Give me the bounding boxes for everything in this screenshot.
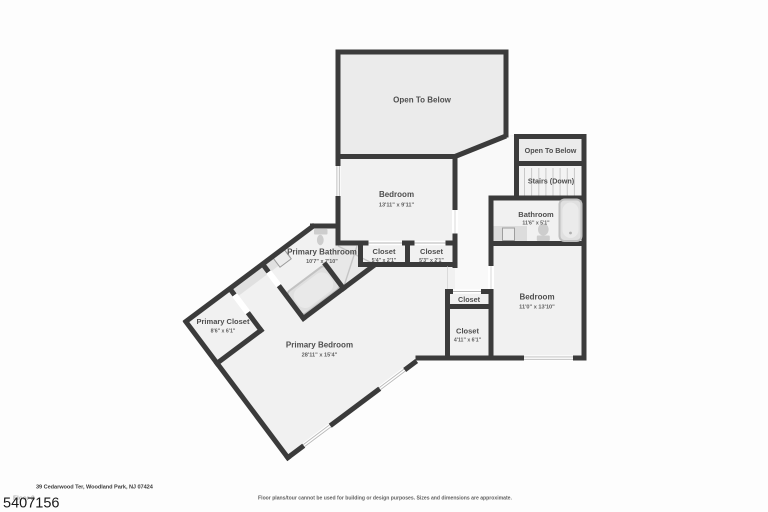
svg-text:Open To Below: Open To Below <box>525 146 577 155</box>
svg-text:Primary Bedroom: Primary Bedroom <box>286 341 353 350</box>
svg-text:Floor plans/tour cannot be use: Floor plans/tour cannot be used for buil… <box>258 496 512 502</box>
svg-text:Primary Closet: Primary Closet <box>197 317 250 326</box>
svg-text:Open To Below: Open To Below <box>393 96 451 105</box>
svg-text:Closet: Closet <box>456 327 479 336</box>
svg-text:5'4" x 2'1": 5'4" x 2'1" <box>372 258 397 264</box>
svg-text:Stairs (Down): Stairs (Down) <box>528 177 575 186</box>
svg-text:5'3" x 2'1": 5'3" x 2'1" <box>419 258 444 264</box>
svg-text:Closet: Closet <box>420 247 443 256</box>
svg-text:11'6" x 5'1": 11'6" x 5'1" <box>522 221 550 227</box>
svg-text:Closet: Closet <box>373 247 396 256</box>
svg-text:4'11" x 6'1": 4'11" x 6'1" <box>454 338 482 344</box>
svg-text:Closet: Closet <box>458 295 481 304</box>
svg-text:11'0" x 13'10": 11'0" x 13'10" <box>519 305 555 311</box>
svg-text:Bedroom: Bedroom <box>379 190 414 199</box>
svg-text:10'7" x 7'10": 10'7" x 7'10" <box>306 259 338 265</box>
svg-text:39 Cedarwood Ter, Woodland Par: 39 Cedarwood Ter, Woodland Park, NJ 0742… <box>36 485 154 491</box>
svg-text:Bedroom: Bedroom <box>519 293 554 302</box>
svg-text:Bathroom: Bathroom <box>518 210 554 219</box>
svg-text:8'6" x 6'1": 8'6" x 6'1" <box>211 329 236 335</box>
svg-text:13'11" x 9'11": 13'11" x 9'11" <box>379 203 415 209</box>
svg-text:Primary Bathroom: Primary Bathroom <box>287 248 357 257</box>
svg-text:28'11" x 15'4": 28'11" x 15'4" <box>302 353 338 359</box>
svg-text:5407156: 5407156 <box>3 496 59 512</box>
